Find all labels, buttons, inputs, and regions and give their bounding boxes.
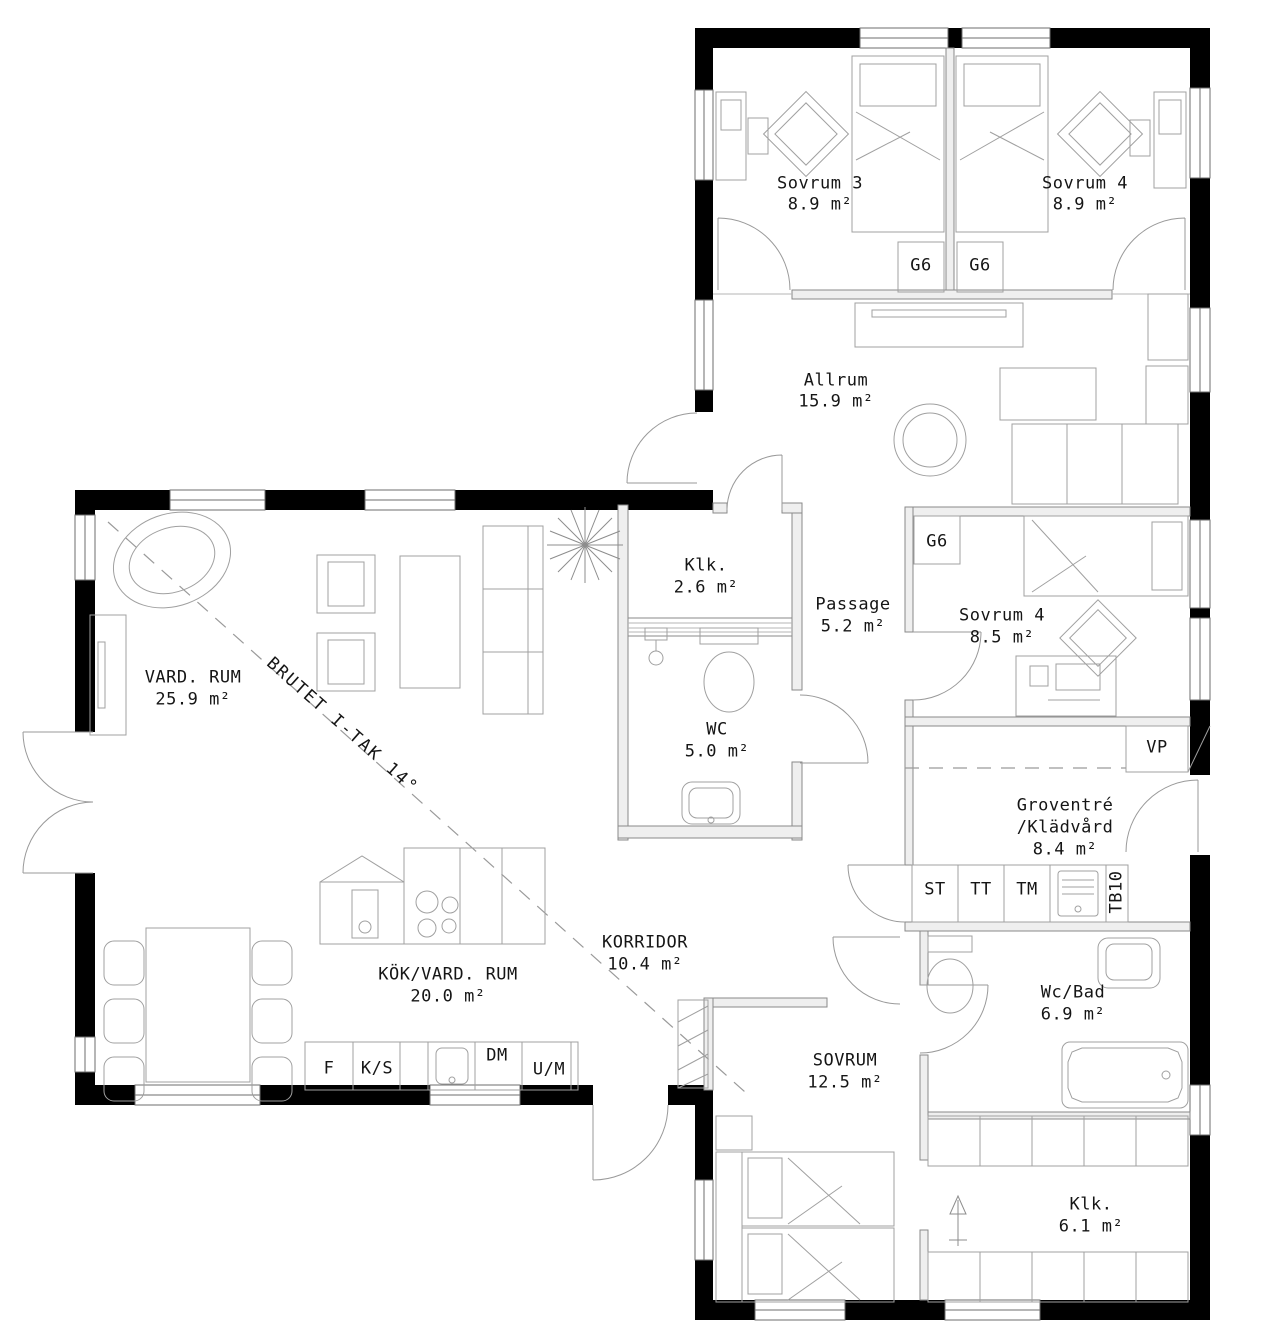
allrum-sofa — [1012, 294, 1188, 504]
wcbad-bathtub — [1062, 1042, 1188, 1108]
wc-basin — [682, 782, 740, 824]
vardrum-tv-bench — [90, 615, 126, 735]
room-label-sovrum3: Sovrum 3 — [777, 176, 863, 193]
room-area-groventre: 8.4 m² — [1033, 842, 1097, 859]
dining-chairs — [104, 941, 292, 1101]
sovrum4-mid-bed — [1024, 516, 1188, 596]
fixture-label-ks: K/S — [361, 1061, 393, 1078]
door-entrance — [593, 1105, 668, 1180]
room-area-vardrum: 25.9 m² — [155, 692, 230, 709]
room-label-sovrum4-top: Sovrum 4 — [1042, 176, 1128, 193]
fixture-label-dm: DM — [486, 1048, 507, 1065]
door-wcbad — [920, 985, 988, 1053]
fixture-label-g6-3: G6 — [926, 534, 947, 551]
room-area-wcbad: 6.9 m² — [1041, 1007, 1105, 1024]
door-groventre — [848, 865, 905, 922]
sovrum4-mid-armchair — [1060, 600, 1136, 676]
door-groventre-exterior — [1126, 780, 1198, 852]
allrum-sideboard — [855, 303, 1023, 347]
sovrum3-armchair — [764, 92, 849, 177]
wcbad-toilet — [927, 936, 973, 1013]
kitchen-island — [320, 848, 545, 944]
room-area-passage: 5.2 m² — [821, 619, 885, 636]
windows — [75, 28, 1210, 1320]
room-area-sovrum4-mid: 8.5 m² — [970, 630, 1034, 647]
fixture-label-g6-1: G6 — [910, 258, 931, 275]
door-wc — [800, 695, 868, 763]
room-area-kok: 20.0 m² — [410, 989, 485, 1006]
fixture-label-tt: TT — [970, 882, 991, 899]
fixture-label-vp: VP — [1146, 740, 1167, 757]
room-area-sovrum3: 8.9 m² — [788, 197, 852, 214]
door-sovrum-master — [833, 937, 900, 1004]
north-arrow-icon — [949, 1196, 967, 1246]
vardrum-coffee-table — [400, 556, 460, 688]
room-label-wc: WC — [706, 722, 727, 739]
room-label-korridor: KORRIDOR — [602, 935, 688, 952]
vardrum-corner-chair — [100, 496, 244, 623]
room-label-allrum: Allrum — [804, 373, 868, 390]
room-label-groventre: Groventré — [1017, 798, 1114, 815]
fixture-label-st: ST — [924, 882, 945, 899]
fixture-label-um: U/M — [533, 1062, 565, 1079]
room-area-klk-bottom: 6.1 m² — [1059, 1219, 1123, 1236]
fixture-label-tb10: TB10 — [1109, 871, 1126, 914]
room-area-allrum: 15.9 m² — [798, 394, 873, 411]
vardrum-sofa — [483, 526, 543, 714]
door-french — [23, 732, 93, 873]
sovrum4-mid-desk — [1016, 656, 1116, 716]
room-label-groventre-2: /Klädvård — [1017, 820, 1114, 837]
sovrum4-top-bed — [956, 56, 1048, 232]
vardrum-armchair-2 — [317, 633, 375, 691]
sovrum3-desk — [716, 92, 768, 180]
room-label-kok: KÖK/VARD. RUM — [378, 967, 518, 984]
room-label-passage: Passage — [815, 597, 890, 614]
fixture-label-tm: TM — [1016, 882, 1037, 899]
room-label-vardrum: VARD. RUM — [145, 670, 242, 687]
door-allrum-exterior — [627, 413, 697, 483]
room-area-klk-top: 2.6 m² — [674, 580, 738, 597]
room-label-klk-bottom: Klk. — [1070, 1197, 1113, 1214]
fixture-label-g6-2: G6 — [969, 258, 990, 275]
room-label-sovrum-master: SOVRUM — [813, 1053, 877, 1070]
room-area-korridor: 10.4 m² — [607, 957, 682, 974]
sovrum3-bed — [852, 56, 944, 232]
room-area-sovrum-master: 12.5 m² — [807, 1075, 882, 1092]
sovrum4-top-desk — [1130, 92, 1186, 188]
plant-icon — [547, 507, 623, 583]
dining-table — [146, 928, 250, 1082]
room-area-sovrum4-top: 8.9 m² — [1053, 197, 1117, 214]
room-label-wcbad: Wc/Bad — [1041, 985, 1105, 1002]
door-sovrum3 — [718, 218, 790, 290]
allrum-round-chair — [894, 404, 966, 476]
fixture-label-f: F — [324, 1061, 335, 1078]
master-bed — [716, 1116, 894, 1302]
wcbad-sink — [1098, 938, 1160, 988]
exterior-walls — [75, 28, 1210, 1320]
room-label-klk-top: Klk. — [685, 558, 728, 575]
wc-toilet — [700, 628, 758, 712]
door-sovrum4-top — [1113, 218, 1185, 290]
klk-wardrobes — [928, 1116, 1188, 1302]
vardrum-armchair-1 — [317, 555, 375, 613]
allrum-table — [1000, 368, 1096, 420]
floor-plan: Sovrum 3 8.9 m² Sovrum 4 8.9 m² G6 G6 Al… — [0, 0, 1288, 1344]
room-area-wc: 5.0 m² — [685, 744, 749, 761]
door-klk-top — [727, 455, 782, 510]
room-label-sovrum4-mid: Sovrum 4 — [959, 608, 1045, 625]
